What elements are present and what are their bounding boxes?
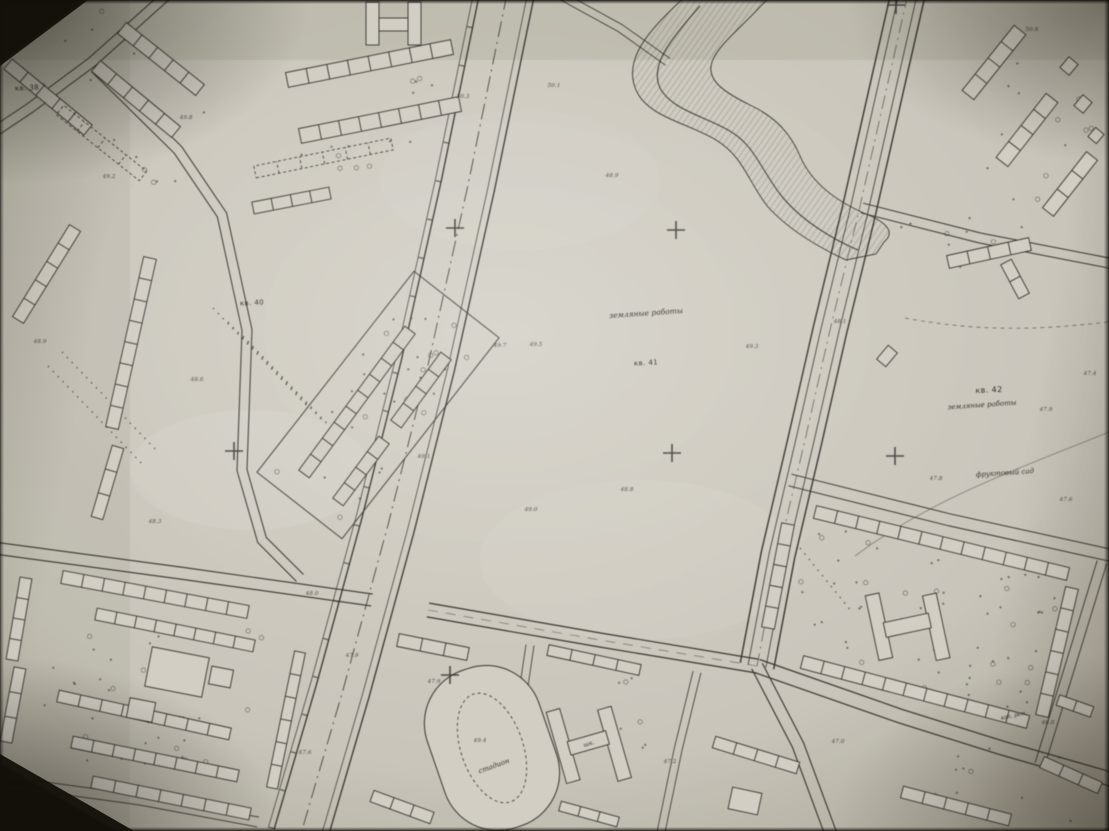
map-canvas bbox=[0, 0, 1109, 831]
map-content: кв. 38кв. 40кв. 41кв. 42земляные работыз… bbox=[0, 0, 1109, 831]
map-photo: кв. 38кв. 40кв. 41кв. 42земляные работыз… bbox=[0, 0, 1109, 831]
